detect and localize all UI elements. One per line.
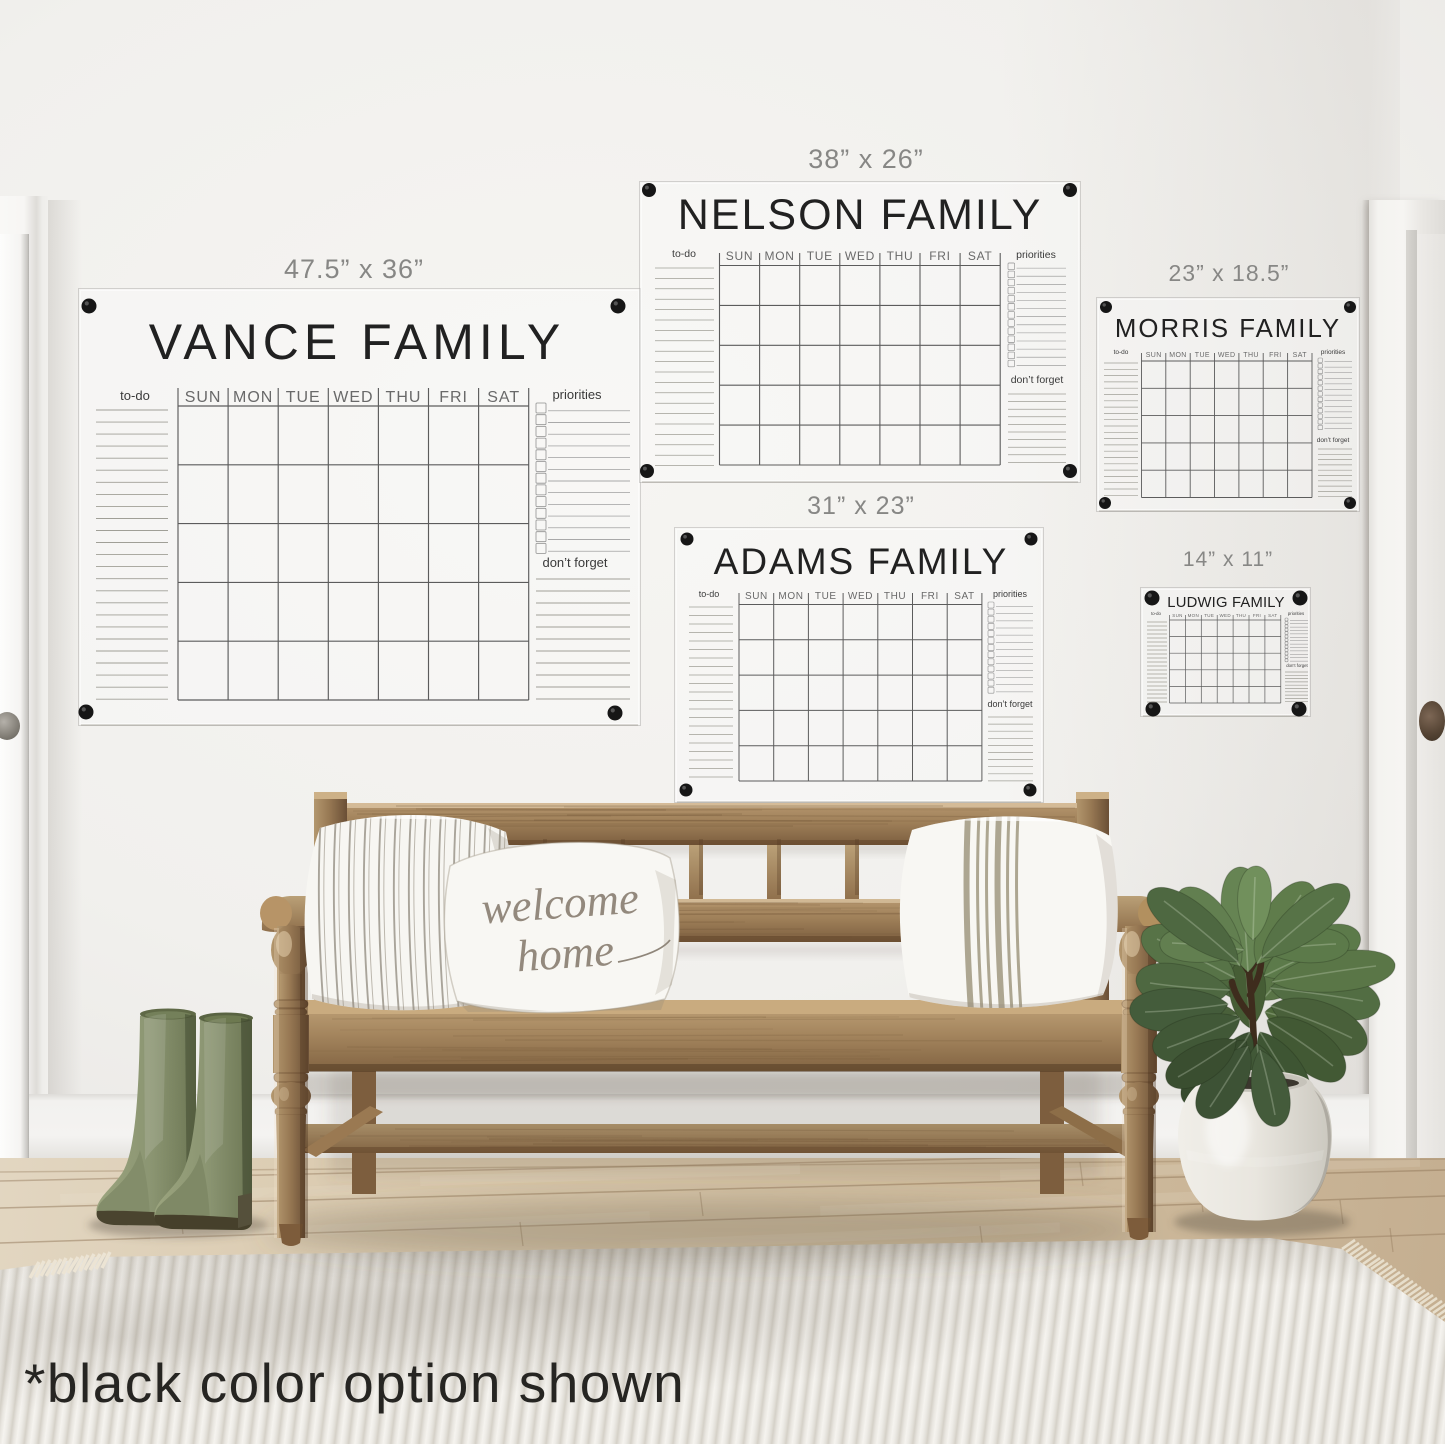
svg-text:home: home — [515, 925, 616, 982]
